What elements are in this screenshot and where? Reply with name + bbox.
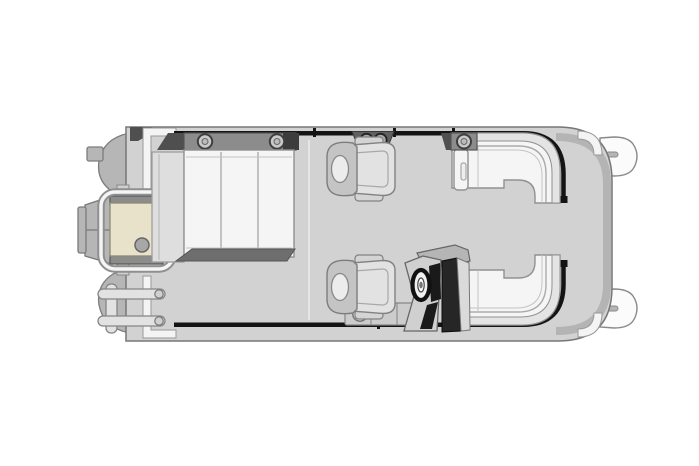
ladder-mount bbox=[155, 290, 163, 298]
fence-joint bbox=[313, 128, 316, 137]
lounge-side-panel bbox=[152, 152, 184, 262]
rear-lounge bbox=[152, 133, 299, 262]
helm-chair bbox=[327, 255, 395, 319]
ladder-mount bbox=[155, 317, 163, 325]
lounge-front-trim bbox=[176, 249, 295, 261]
port-cleat bbox=[87, 147, 103, 161]
lounge-back-bar bbox=[157, 133, 299, 150]
boat-diagram bbox=[0, 0, 699, 466]
lounge-cushion bbox=[184, 150, 294, 257]
armrest-latch bbox=[461, 163, 466, 180]
fuel-cap bbox=[135, 238, 149, 252]
steering-wheel bbox=[413, 270, 430, 300]
captain-chair-port bbox=[327, 137, 395, 201]
pontoon-floorplan-canvas bbox=[0, 0, 699, 466]
bar-end-cap bbox=[283, 133, 299, 150]
